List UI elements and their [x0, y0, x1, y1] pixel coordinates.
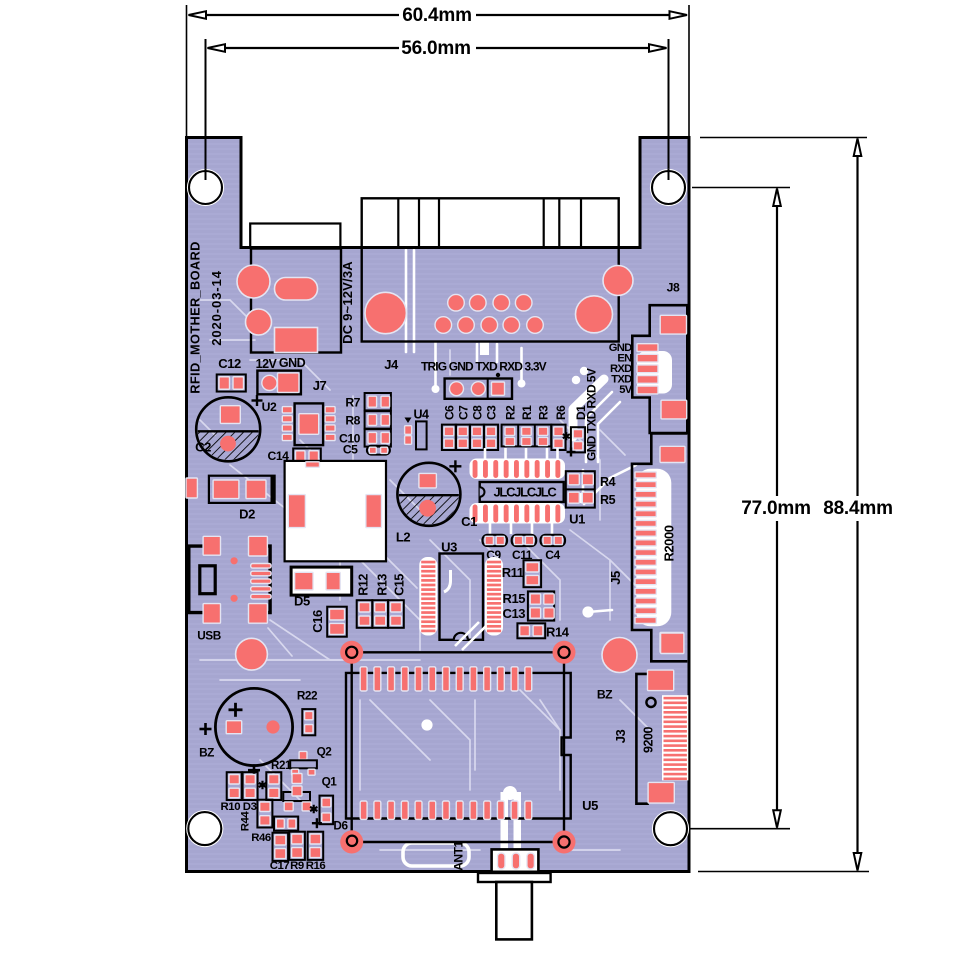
- svg-text:C2: C2: [195, 440, 211, 455]
- svg-text:TRIG GND TXD RXD 3.3V: TRIG GND TXD RXD 3.3V: [421, 360, 547, 374]
- svg-text:C8: C8: [471, 405, 485, 420]
- svg-text:U4: U4: [413, 408, 429, 422]
- svg-text:R14: R14: [546, 625, 570, 640]
- svg-text:J4: J4: [384, 357, 399, 372]
- svg-text:R9: R9: [290, 860, 304, 872]
- svg-text:R7: R7: [345, 396, 360, 410]
- svg-text:J5: J5: [608, 571, 623, 585]
- svg-text:U2: U2: [262, 400, 277, 414]
- svg-text:2020-03-14: 2020-03-14: [209, 270, 224, 345]
- svg-text:C12: C12: [218, 356, 241, 371]
- svg-text:R1: R1: [520, 405, 534, 420]
- svg-text:D6: D6: [333, 818, 348, 832]
- svg-text:R11: R11: [502, 565, 524, 580]
- svg-text:D2: D2: [239, 507, 255, 522]
- svg-text:U3: U3: [441, 540, 457, 555]
- svg-text:D5: D5: [294, 594, 310, 609]
- svg-text:GND TXD RXD 5V: GND TXD RXD 5V: [585, 368, 599, 461]
- svg-text:C5: C5: [343, 443, 358, 457]
- svg-text:DC 9~12V/3A: DC 9~12V/3A: [340, 261, 355, 344]
- svg-text:60.4mm: 60.4mm: [402, 5, 472, 26]
- svg-text:R16: R16: [306, 860, 326, 872]
- svg-text:R22: R22: [297, 689, 318, 703]
- svg-text:Q1: Q1: [322, 775, 338, 789]
- svg-text:U5: U5: [582, 798, 598, 813]
- svg-text:R4: R4: [600, 475, 616, 489]
- svg-text:C7: C7: [456, 405, 470, 420]
- svg-text:GND: GND: [279, 356, 306, 370]
- svg-text:C4: C4: [545, 548, 560, 562]
- svg-text:J3: J3: [613, 730, 628, 744]
- svg-text:R8: R8: [345, 414, 360, 428]
- svg-text:L2: L2: [396, 530, 410, 545]
- svg-text:77.0mm: 77.0mm: [741, 498, 811, 519]
- svg-text:C15: C15: [393, 574, 407, 596]
- svg-text:C1: C1: [461, 514, 477, 529]
- svg-text:R13: R13: [376, 574, 390, 596]
- svg-text:C13: C13: [503, 606, 526, 621]
- svg-text:9200: 9200: [642, 727, 656, 754]
- svg-text:J7: J7: [313, 378, 327, 393]
- svg-text:5V: 5V: [619, 384, 633, 396]
- svg-text:R46: R46: [251, 832, 271, 844]
- svg-text:U1: U1: [569, 512, 585, 527]
- svg-text:RFID_MOTHER_BOARD: RFID_MOTHER_BOARD: [188, 241, 203, 393]
- svg-text:R10 D3: R10 D3: [221, 801, 257, 813]
- svg-text:R6: R6: [554, 405, 568, 420]
- svg-text:✱: ✱: [309, 804, 318, 816]
- svg-text:ANT1: ANT1: [452, 840, 466, 870]
- svg-text:C16: C16: [310, 610, 325, 633]
- svg-text:R2: R2: [503, 405, 517, 420]
- svg-text:R15: R15: [503, 591, 526, 606]
- svg-text:R3: R3: [537, 405, 551, 420]
- svg-text:BZ: BZ: [199, 746, 214, 760]
- svg-text:56.0mm: 56.0mm: [401, 38, 471, 59]
- svg-text:88.4mm: 88.4mm: [823, 498, 893, 519]
- svg-text:R44: R44: [240, 811, 252, 832]
- svg-text:✱: ✱: [562, 431, 571, 443]
- svg-text:USB: USB: [197, 629, 221, 643]
- svg-text:C17: C17: [270, 860, 290, 872]
- svg-text:R5: R5: [600, 493, 616, 507]
- svg-text:R12: R12: [357, 574, 371, 596]
- svg-text:BZ: BZ: [597, 688, 613, 702]
- svg-text:12V: 12V: [256, 357, 278, 371]
- svg-text:C3: C3: [485, 405, 499, 420]
- svg-text:C6: C6: [443, 405, 457, 420]
- svg-text:J8: J8: [667, 281, 680, 295]
- svg-text:R21: R21: [271, 759, 292, 772]
- svg-text:JLCJLCJLC: JLCJLCJLC: [494, 485, 558, 500]
- svg-text:Q2: Q2: [317, 745, 333, 759]
- svg-text:R2000: R2000: [662, 525, 677, 561]
